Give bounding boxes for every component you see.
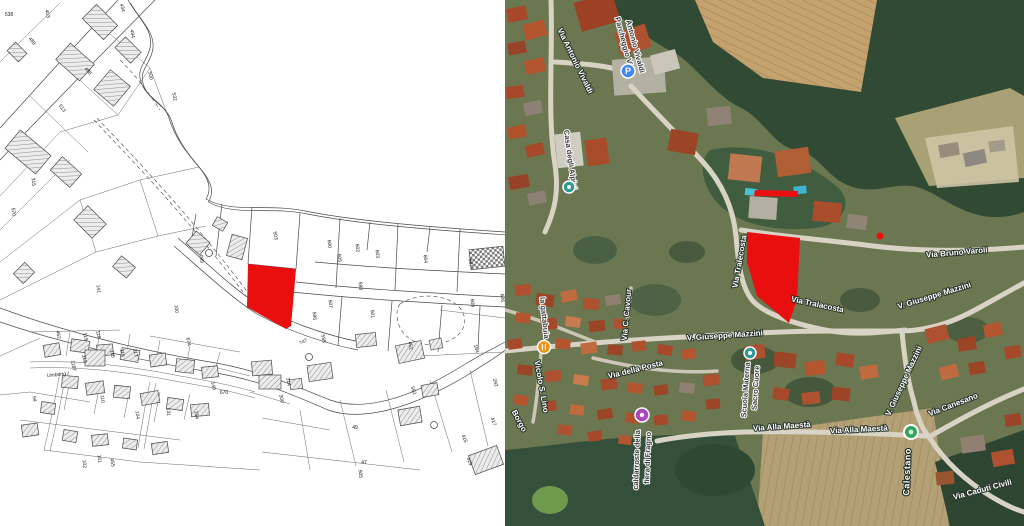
school-marker[interactable] — [744, 347, 756, 359]
parcel-number: 110 — [99, 395, 106, 404]
parcel-number: 501 — [369, 309, 376, 318]
parcel-location-maps: 403 434 494 489 538 500 488 513 532 570 … — [0, 0, 1024, 526]
event-marker[interactable] — [635, 408, 649, 422]
parcel-number: 154 — [193, 410, 200, 419]
parcel-number: 47 — [361, 460, 367, 466]
restaurant-marker[interactable] — [538, 341, 551, 354]
parcel-number: 538 — [5, 12, 14, 18]
parcel-number: 603 — [374, 249, 381, 258]
parcel-number: 507 — [327, 299, 334, 308]
parcel-number: 131 — [165, 407, 172, 416]
parcel-number: 315 — [30, 177, 37, 186]
map-sheet — [0, 0, 505, 526]
parcel-number: 49 — [352, 425, 358, 431]
parcel-number: 596 — [311, 311, 318, 320]
parcel-number: 600 — [326, 239, 333, 248]
parcel-number: 608 — [469, 298, 476, 307]
cadastral-map[interactable]: 403 434 494 489 538 500 488 513 532 570 … — [0, 0, 505, 526]
parcel-number: 124 — [134, 410, 141, 419]
parking-glyph: P — [625, 66, 631, 76]
town-marker[interactable] — [904, 425, 918, 439]
parcel-number: 141 — [95, 284, 102, 293]
parcel-number: 101 — [96, 454, 103, 463]
orchard-parcel — [469, 246, 505, 269]
parcel-number: 605 — [336, 253, 343, 262]
parking-marker[interactable]: P — [621, 64, 635, 78]
town-label-calestano: Calestano — [901, 448, 913, 496]
parcel-number: 602 — [354, 243, 361, 252]
parcel-number: 102 — [81, 459, 88, 468]
parcel-number: 100 — [173, 304, 180, 313]
parcel-number: 099 — [198, 254, 205, 263]
parcel-number: 598 — [357, 281, 364, 290]
parcel-number: 604 — [422, 254, 429, 263]
parcel-number: 670 — [220, 390, 229, 396]
poi-label: fiera di Fragno — [642, 431, 653, 484]
parcel-number: 607 — [467, 258, 474, 267]
parcel-number: 570 — [10, 207, 17, 216]
parcel-number: 505 — [357, 469, 364, 478]
casa-alpini-marker[interactable] — [563, 181, 575, 193]
satellite-map[interactable]: Via Antonio Vivaldi Vicolo S. Lino Borgo… — [505, 0, 1024, 526]
